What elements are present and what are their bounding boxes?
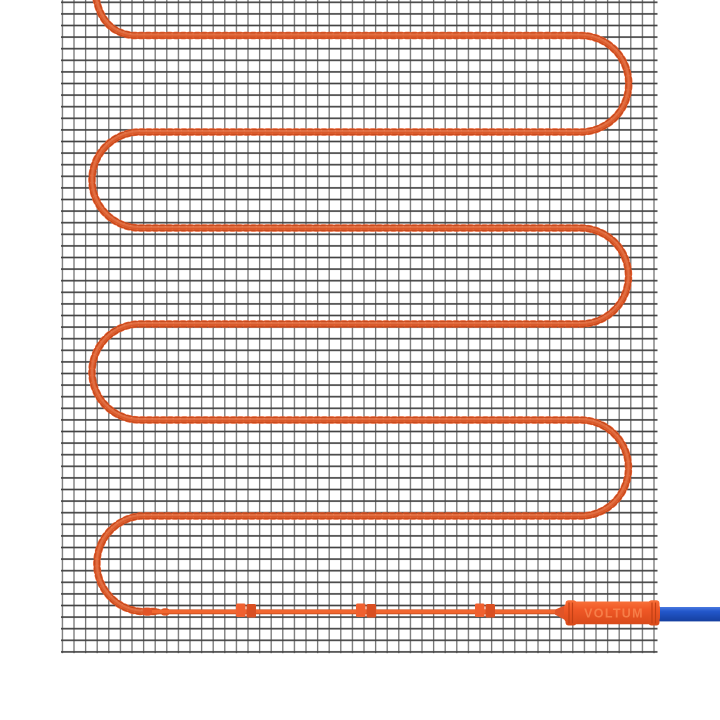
svg-text:VOLTUM: VOLTUM <box>584 606 644 620</box>
